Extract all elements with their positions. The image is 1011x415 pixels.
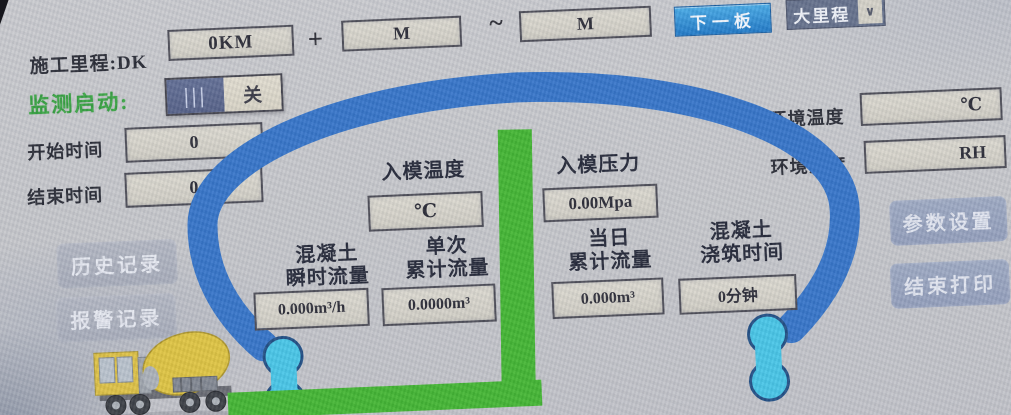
pour-time-readout: 0分钟 [678,274,797,315]
mold-temp-readout: ℃ [367,191,483,232]
tunnel-diagram [0,0,1011,415]
single-flow-readout: 0.0000m³ [381,283,496,326]
feed-pipe-horizontal [228,393,542,406]
mold-pressure-readout: 0.00Mpa [542,184,658,223]
hmi-screen: 施工里程:DK 0KM + M ~ M 下一板 大里程 ∨ 监测启动: ||| … [0,0,1011,415]
mixer-truck-illustration [91,322,239,415]
coupling-right [748,314,790,401]
instant-flow-readout: 0.000m³/h [253,288,369,331]
photo-corner-artifact [0,0,12,42]
feed-pipe-vertical [508,130,526,392]
daily-flow-readout: 0.000m³ [551,277,664,319]
